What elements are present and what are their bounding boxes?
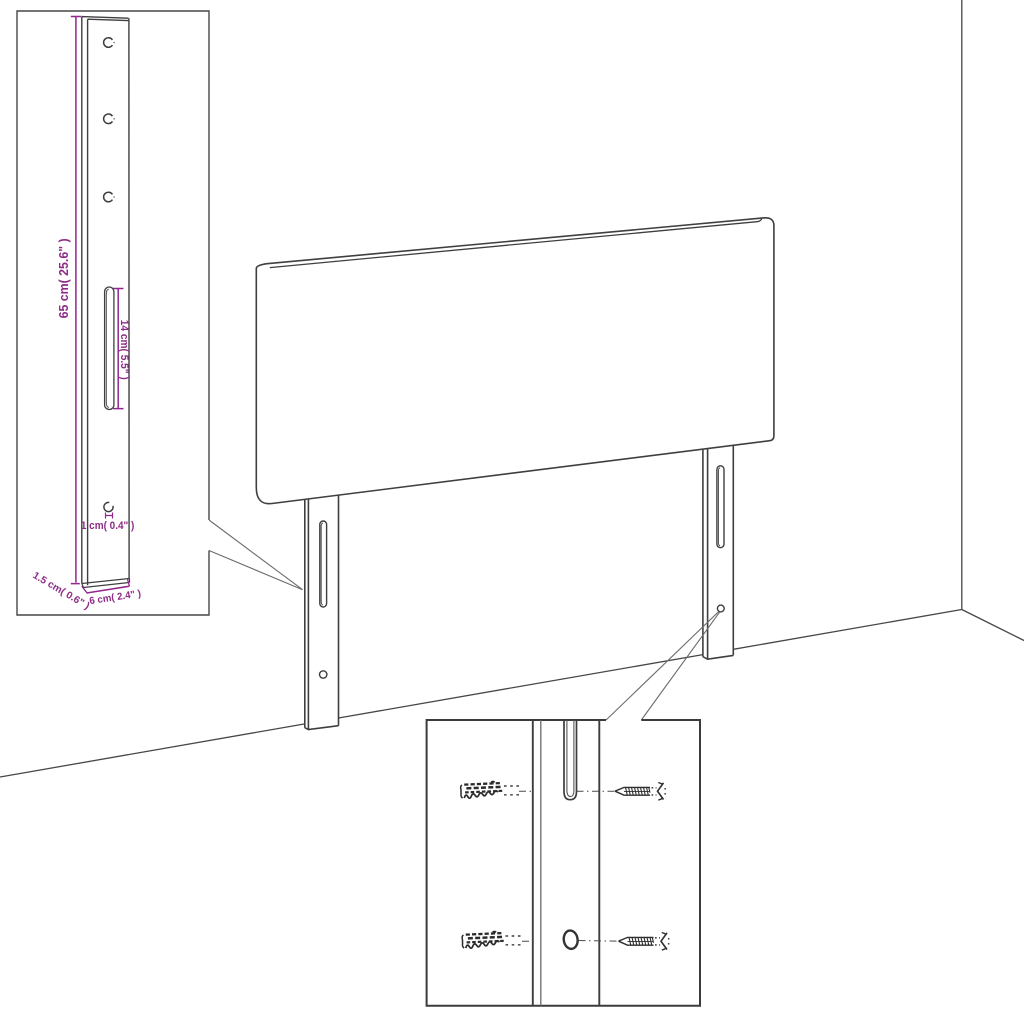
svg-text:14 cm( 5.5" ): 14 cm( 5.5" ) <box>118 320 130 380</box>
svg-text:1 cm( 0.4" ): 1 cm( 0.4" ) <box>81 520 135 532</box>
svg-text:65 cm( 25.6" ): 65 cm( 25.6" ) <box>56 238 71 318</box>
